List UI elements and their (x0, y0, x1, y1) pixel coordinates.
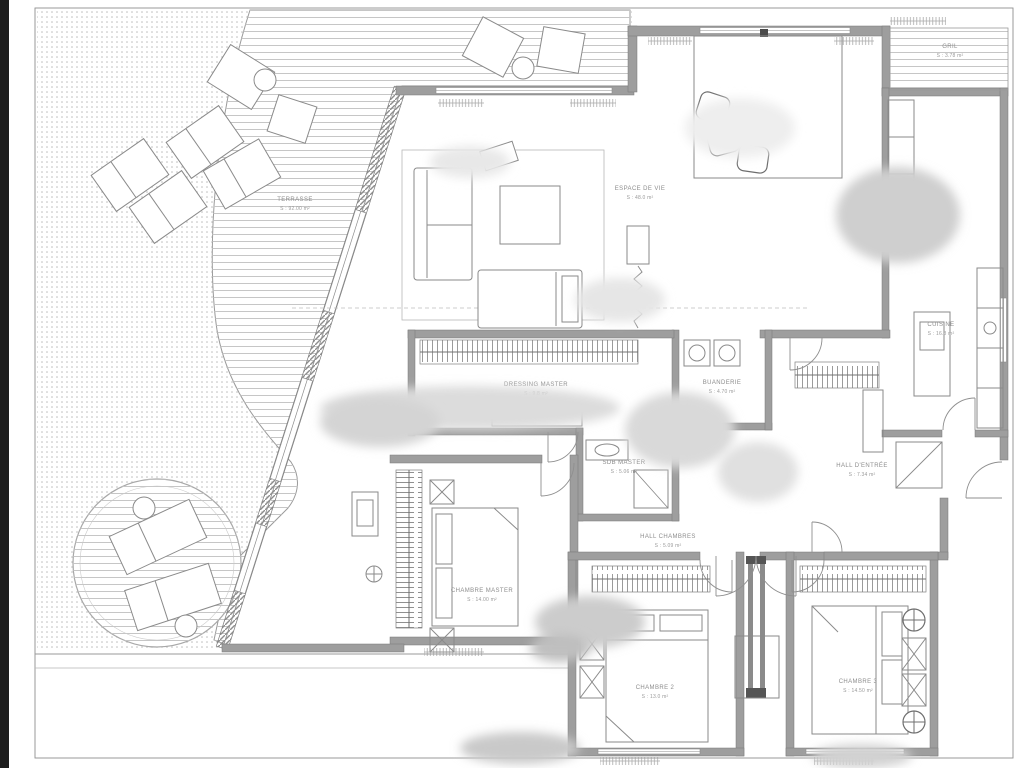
terrace-side-table (254, 69, 276, 91)
sofa (414, 168, 472, 280)
dimension-chain (648, 37, 692, 45)
wall-segment (940, 498, 948, 558)
door-arc (943, 398, 975, 430)
entry-door-arc (966, 462, 1002, 498)
room-area-cuisine: S : 16.8 m² (928, 331, 955, 337)
room-label-chambre-master: CHAMBRE MASTER (451, 588, 514, 594)
coat-closet (795, 362, 879, 388)
room-label-sdb: SDB MASTER (602, 460, 645, 466)
room-area-hall-entree: S : 7.34 m² (849, 472, 876, 478)
dimension-chain (424, 648, 484, 656)
wall-segment (390, 455, 542, 463)
floor-plan-image: TERRASSE S : 92.00 m² (0, 0, 1024, 768)
ceiling-fixture (903, 609, 925, 631)
room-area-terrasse: S : 92.00 m² (280, 206, 310, 212)
terrace-side-table (512, 57, 534, 79)
coffee-table (500, 186, 560, 244)
hall-chambres: HALL CHAMBRES S : 5.09 m² (640, 534, 696, 549)
terrace-table (537, 27, 585, 74)
bed (812, 606, 908, 734)
wall-segment (760, 330, 890, 338)
room-area-chambre-2: S : 13.0 m² (642, 694, 669, 700)
room-area-chambre-3: S : 14.50 m² (843, 688, 873, 694)
double-door-arc (716, 556, 796, 596)
room-label-chambre-2: CHAMBRE 2 (636, 685, 675, 691)
wardrobe-band (592, 566, 710, 592)
room-label-hall-entree: HALL D'ENTRÉE (836, 462, 887, 469)
hall-entree: HALL D'ENTRÉE S : 7.34 m² (795, 362, 942, 488)
bedroom-2: CHAMBRE 2 S : 13.0 m² (580, 566, 710, 742)
room-label-cuisine: CUISINE (927, 322, 954, 328)
bedroom-master: CHAMBRE MASTER S : 14.00 m² (352, 470, 518, 652)
dimension-chain (570, 99, 616, 107)
kitchen-counter (977, 268, 1003, 428)
wc-fixtures (352, 492, 382, 582)
room-area-sdb: S : 5.06 m² (611, 469, 638, 475)
washer (684, 340, 710, 366)
dimension-chain (890, 17, 946, 25)
dimension-chain (834, 37, 874, 45)
nightstand (430, 480, 454, 504)
room-label-chambre-3: CHAMBRE 3 (839, 679, 878, 685)
door-arc (812, 522, 842, 552)
wall-segment (408, 330, 674, 338)
terrace-side-table (175, 615, 197, 637)
floor-plan-page: TERRASSE S : 92.00 m² (0, 0, 1024, 768)
bedroom-3: CHAMBRE 3 S : 14.50 m² (800, 566, 926, 734)
room-label-espace-de-vie: ESPACE DE VIE (615, 186, 665, 192)
tall-cabinet (863, 390, 883, 452)
window (700, 28, 850, 34)
wall-segment (882, 430, 942, 437)
room-label-terrasse: TERRASSE (277, 197, 313, 203)
terrace-side-table (133, 497, 155, 519)
wardrobe-band (800, 566, 926, 592)
window (436, 88, 612, 94)
dryer-door (719, 345, 735, 361)
wardrobe-band (396, 470, 422, 628)
room-area-gril: S : 3.78 m² (937, 53, 964, 59)
room-area-buanderie: S : 4.70 m² (709, 389, 736, 395)
room-label-buanderie: BUANDERIE (703, 380, 742, 386)
washer-door (689, 345, 705, 361)
scan-edge-strip (0, 0, 9, 768)
wardrobe-band (420, 340, 638, 364)
wall-segment (568, 552, 700, 560)
wall-segment (765, 330, 772, 430)
bed (432, 508, 518, 626)
gril-balcony: GRIL S : 3.78 m² (890, 28, 1008, 90)
room-label-hall-chambres: HALL CHAMBRES (640, 534, 696, 540)
daybed (478, 270, 582, 328)
wall-segment (824, 552, 938, 560)
nightstand (580, 666, 604, 698)
dimension-chain (600, 757, 660, 765)
room-area-espace-de-vie: S : 48.0 m² (627, 195, 654, 201)
wall-segment (882, 252, 889, 338)
wall-segment (882, 26, 890, 96)
dryer (714, 340, 740, 366)
window (598, 749, 700, 754)
wall-segment (975, 430, 1008, 437)
ceiling-fixture (903, 711, 925, 733)
basin (595, 444, 619, 456)
vanity (586, 440, 628, 460)
door-arc (541, 463, 574, 496)
room-area-hall-chambres: S : 5.09 m² (655, 543, 682, 549)
dimension-chain (438, 99, 484, 107)
wall-segment (1000, 88, 1008, 460)
room-area-chambre-master: S : 14.00 m² (467, 597, 497, 603)
wall-segment (576, 514, 679, 521)
wall-segment (786, 552, 794, 756)
wall-segment (930, 552, 938, 756)
wall-segment (736, 552, 744, 756)
room-label-gril: GRIL (942, 44, 958, 50)
wall-segment (222, 644, 404, 652)
buanderie: BUANDERIE S : 4.70 m² (684, 340, 741, 395)
sink (984, 322, 996, 334)
kitchen: CUISINE S : 16.8 m² (888, 100, 1003, 428)
storage-closet (896, 442, 942, 488)
